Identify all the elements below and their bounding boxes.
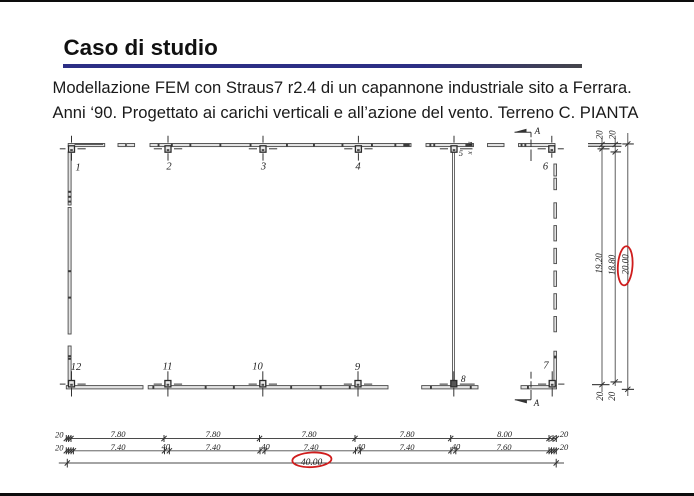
svg-text:5: 5: [459, 148, 463, 158]
svg-text:7.80: 7.80: [206, 429, 222, 439]
svg-text:7.40: 7.40: [304, 442, 320, 452]
svg-text:7.40: 7.40: [111, 442, 127, 452]
svg-text:7.40: 7.40: [206, 442, 222, 452]
svg-text:x: x: [466, 150, 474, 155]
svg-text:20: 20: [55, 442, 64, 452]
svg-text:7.40: 7.40: [400, 442, 416, 452]
svg-text:7.60: 7.60: [497, 442, 513, 452]
svg-text:4: 4: [355, 162, 361, 173]
svg-text:20: 20: [55, 430, 64, 440]
svg-text:20: 20: [595, 391, 605, 401]
svg-text:7: 7: [543, 361, 549, 372]
svg-text:40: 40: [261, 441, 270, 451]
svg-text:20: 20: [608, 130, 618, 140]
svg-text:3: 3: [260, 162, 266, 173]
svg-text:40: 40: [357, 441, 366, 451]
svg-text:18.80: 18.80: [607, 254, 617, 275]
svg-text:A: A: [534, 126, 541, 136]
svg-text:11: 11: [163, 362, 173, 373]
svg-text:19.20: 19.20: [594, 253, 604, 274]
svg-text:40: 40: [452, 441, 461, 451]
svg-text:20: 20: [607, 391, 617, 401]
svg-text:a: a: [466, 141, 474, 145]
svg-text:7.80: 7.80: [111, 429, 127, 439]
svg-text:2: 2: [166, 162, 172, 173]
svg-text:6: 6: [543, 162, 549, 173]
svg-text:7.80: 7.80: [400, 429, 416, 439]
svg-text:20: 20: [560, 442, 569, 452]
svg-text:40: 40: [162, 441, 171, 451]
svg-text:7.80: 7.80: [302, 429, 318, 439]
svg-text:10: 10: [252, 362, 263, 373]
svg-text:A: A: [533, 398, 540, 408]
svg-text:20: 20: [560, 429, 569, 439]
svg-text:12: 12: [71, 362, 82, 373]
svg-text:20.00: 20.00: [621, 254, 631, 275]
svg-text:8: 8: [461, 375, 466, 385]
svg-text:9: 9: [355, 362, 361, 373]
svg-text:20: 20: [595, 130, 605, 140]
svg-text:8.00: 8.00: [497, 429, 513, 439]
svg-text:1: 1: [75, 163, 80, 174]
